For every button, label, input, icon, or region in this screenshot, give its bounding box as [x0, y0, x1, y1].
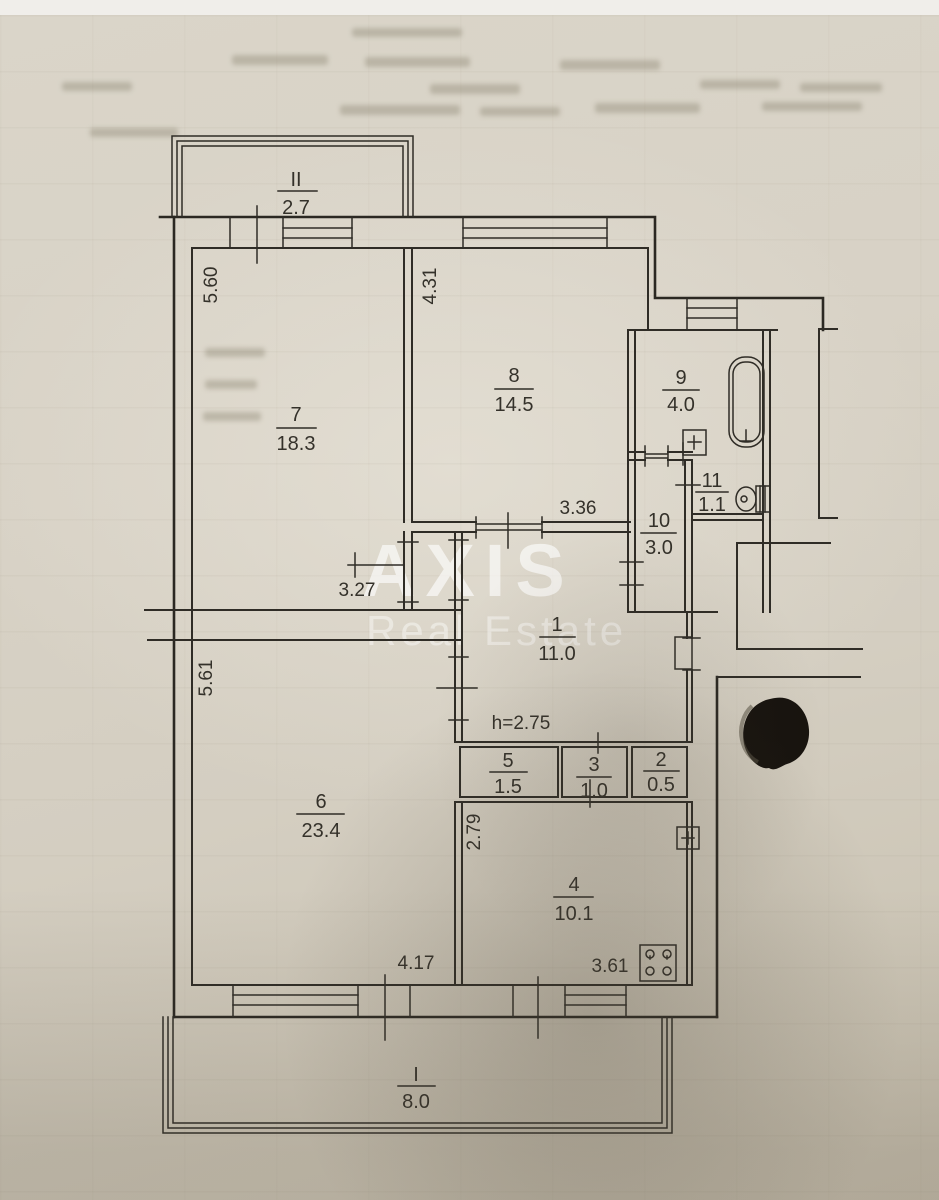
section-stub-lines	[717, 329, 862, 677]
dim-room7-width: 3.27	[339, 580, 376, 601]
svg-text:1.0: 1.0	[580, 780, 608, 802]
stove-icon	[640, 945, 676, 981]
neighbour-loggia-bracket	[819, 329, 837, 518]
svg-text:18.3: 18.3	[277, 433, 316, 455]
room-label-3: 3 1.0	[577, 754, 611, 802]
svg-text:11: 11	[702, 470, 723, 492]
window-room6	[233, 995, 358, 1005]
room-label-9: 9 4.0	[663, 367, 699, 416]
room-label-2: 2 0.5	[644, 749, 679, 796]
dim-room7-height: 5.60	[201, 267, 222, 304]
svg-text:6: 6	[315, 791, 326, 813]
svg-text:0.5: 0.5	[647, 774, 675, 796]
svg-text:1.1: 1.1	[698, 494, 726, 516]
dim-room6-height: 5.61	[196, 660, 217, 697]
floor-plan-drawing: 7 18.3 8 14.5 9 4.0 10 3.0	[0, 0, 939, 1200]
svg-text:1.5: 1.5	[494, 776, 522, 798]
entry-door-niche	[675, 637, 692, 669]
toilet-icon	[736, 486, 770, 512]
dim-kitchen-width: 3.61	[592, 956, 629, 977]
window-kitchen	[565, 995, 626, 1005]
room-label-1: 1 11.0	[538, 614, 575, 665]
room-label-5: 5 1.5	[490, 750, 527, 798]
svg-text:8.0: 8.0	[402, 1091, 430, 1113]
svg-text:10.1: 10.1	[555, 903, 594, 925]
svg-text:2: 2	[655, 749, 666, 771]
svg-text:3.0: 3.0	[645, 537, 673, 559]
ink-blob	[741, 698, 809, 770]
svg-text:1: 1	[551, 614, 562, 636]
room-label-4: 4 10.1	[554, 874, 593, 925]
svg-text:4: 4	[568, 874, 579, 896]
svg-text:14.5: 14.5	[495, 394, 534, 416]
svg-text:4.0: 4.0	[667, 394, 695, 416]
stairwell-outline	[737, 543, 862, 649]
svg-text:5: 5	[502, 750, 513, 772]
svg-text:8: 8	[508, 365, 519, 387]
room-label-11: 11 1.1	[696, 470, 728, 516]
svg-text:2.7: 2.7	[282, 197, 310, 219]
windows	[230, 206, 737, 1040]
svg-text:7: 7	[290, 404, 301, 426]
floor-plan-photo: AXIS Real Estate	[0, 0, 939, 1200]
svg-text:9: 9	[675, 367, 686, 389]
dim-room8-width: 3.36	[560, 498, 597, 519]
room-label-8: 8 14.5	[495, 365, 534, 416]
window-room7	[283, 228, 352, 238]
interior-walls	[145, 248, 763, 985]
bathtub-icon	[729, 357, 764, 447]
svg-text:10: 10	[648, 510, 670, 532]
dimension-marks	[348, 553, 404, 577]
dim-kitchen-height: 2.79	[464, 814, 485, 851]
svg-text:11.0: 11.0	[538, 643, 575, 665]
svg-text:II: II	[290, 169, 301, 191]
dim-room6-width: 4.17	[398, 953, 435, 974]
balcony-label-I: I 8.0	[398, 1064, 435, 1113]
room-label-6: 6 23.4	[297, 791, 344, 842]
dim-ceiling-height: h=2.75	[492, 713, 551, 734]
dim-room8-height: 4.31	[420, 268, 441, 305]
window-room8	[463, 228, 607, 238]
exterior-walls	[160, 217, 823, 1017]
svg-text:23.4: 23.4	[302, 820, 341, 842]
window-bathroom	[687, 298, 737, 330]
balcony-label-II: II 2.7	[278, 169, 317, 219]
room-label-7: 7 18.3	[277, 404, 316, 455]
svg-text:I: I	[413, 1064, 419, 1086]
room-label-10: 10 3.0	[641, 510, 676, 559]
svg-text:3: 3	[588, 754, 599, 776]
